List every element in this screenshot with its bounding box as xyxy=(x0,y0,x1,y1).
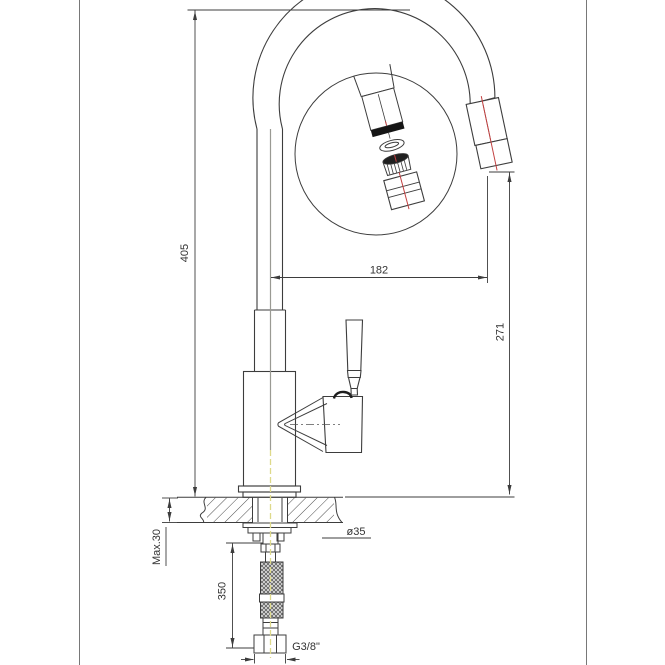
bracket-plate xyxy=(248,528,291,534)
dim-hole-diameter-label: ø35 xyxy=(347,526,366,538)
dimension-lines xyxy=(162,10,515,664)
dim-reach-label: 182 xyxy=(370,265,388,277)
dim-total-height-label: 405 xyxy=(179,244,191,262)
hose-ferrule xyxy=(260,594,285,602)
break-line-right xyxy=(335,497,343,522)
dim-max30 xyxy=(162,498,178,566)
dim-hose-length-label: 350 xyxy=(217,582,229,600)
dim-deck-thickness-label: Max.30 xyxy=(151,529,163,565)
mixer-cartridge xyxy=(278,320,363,453)
spout-tip xyxy=(465,93,513,174)
stud-left xyxy=(253,533,260,541)
flow-straightener xyxy=(382,151,412,175)
base-flange xyxy=(239,486,301,492)
dim-405 xyxy=(188,10,411,497)
dim-271 xyxy=(345,172,515,497)
dim-thread-label: G3/8" xyxy=(292,641,320,653)
body-cylinder xyxy=(244,372,296,487)
faucet-drawing: 405 182 271 Max.30 350 ø35 G3/8" xyxy=(0,0,665,665)
dim-outlet-height-label: 271 xyxy=(495,323,507,341)
aerator-exploded-view xyxy=(353,64,427,214)
hose-braid xyxy=(261,562,284,618)
base-lip xyxy=(243,492,296,497)
handle-lever xyxy=(346,320,363,395)
technical-drawing-canvas: 405 182 271 Max.30 350 ø35 G3/8" xyxy=(0,0,665,665)
faucet-body xyxy=(239,129,301,497)
dim-thread xyxy=(241,654,300,664)
dim-350 xyxy=(226,543,263,648)
break-line-left xyxy=(200,497,206,522)
aerator-washer xyxy=(379,137,406,153)
